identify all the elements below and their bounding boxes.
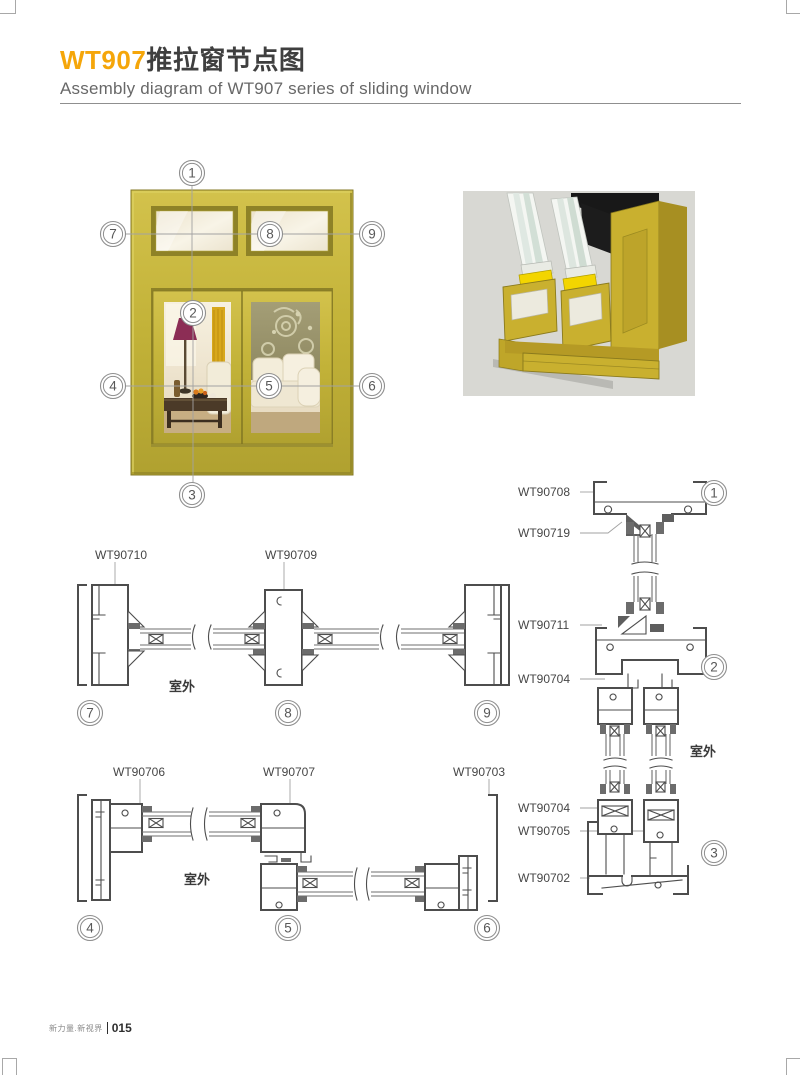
outdoor-label: 室外	[184, 872, 210, 887]
page-subtitle: Assembly diagram of WT907 series of slid…	[60, 79, 750, 99]
svg-text:1: 1	[188, 166, 196, 181]
svg-text:8: 8	[266, 227, 274, 242]
svg-text:8: 8	[284, 706, 292, 721]
page-header: WT907推拉窗节点图 Assembly diagram of WT907 se…	[60, 46, 750, 99]
page-footer: 新力量.新视界 015	[49, 1022, 132, 1034]
section-vertical-detail: WT90708 WT90719 WT90711 WT90704 WT90704 …	[510, 478, 755, 903]
svg-text:2: 2	[710, 660, 718, 675]
left-jamb-profile	[78, 585, 144, 685]
callout-9: 9	[475, 701, 500, 726]
transom-left-pane	[151, 206, 238, 256]
sash-columns	[598, 688, 678, 876]
callout-6: 6	[475, 916, 500, 941]
svg-text:6: 6	[368, 379, 376, 394]
glazing-left	[140, 625, 265, 649]
part-label: WT90719	[518, 526, 570, 540]
callout-9: 9	[360, 222, 385, 247]
callout-4: 4	[101, 374, 126, 399]
svg-text:9: 9	[483, 706, 491, 721]
title-series-code: WT907	[60, 45, 146, 75]
part-label: WT90705	[518, 824, 570, 838]
transom-profile	[596, 628, 706, 688]
callout-2: 2	[702, 655, 727, 680]
part-label: WT90710	[95, 548, 147, 562]
part-label: WT90708	[518, 485, 570, 499]
part-label: WT90702	[518, 871, 570, 885]
header-divider	[60, 103, 741, 104]
crop-mark-top-left	[0, 0, 16, 14]
callout-6: 6	[360, 374, 385, 399]
left-jamb-sash	[78, 795, 152, 901]
crop-mark-top-right	[786, 0, 800, 14]
svg-text:9: 9	[368, 227, 376, 242]
glazing-right	[314, 625, 465, 649]
bottom-track	[151, 444, 333, 447]
callout-1: 1	[702, 481, 727, 506]
render-3d-profile	[463, 191, 695, 396]
title-chinese: 推拉窗节点图	[146, 45, 305, 75]
callout-2: 2	[181, 301, 206, 326]
svg-text:2: 2	[189, 306, 197, 321]
footer-page-number: 015	[107, 1022, 132, 1034]
part-label: WT90703	[453, 765, 505, 779]
crop-mark-bottom-left	[2, 1058, 17, 1075]
part-label: WT90704	[518, 801, 570, 815]
callout-8: 8	[258, 222, 283, 247]
glazing-unit-top	[618, 522, 664, 634]
callout-3: 3	[180, 483, 205, 508]
svg-text:3: 3	[188, 488, 196, 503]
callout-8: 8	[276, 701, 301, 726]
svg-text:5: 5	[265, 379, 273, 394]
section-horizontal-top: WT90710 WT90709	[65, 545, 510, 735]
interior-scene-right	[251, 302, 320, 433]
callout-5: 5	[276, 916, 301, 941]
svg-text:1: 1	[710, 486, 718, 501]
glazing-upper	[142, 806, 261, 842]
svg-text:6: 6	[483, 921, 491, 936]
svg-text:4: 4	[86, 921, 94, 936]
part-label: WT90711	[518, 618, 569, 632]
footer-brand: 新力量.新视界	[49, 1023, 103, 1034]
crop-mark-bottom-right	[786, 1058, 800, 1075]
page-title: WT907推拉窗节点图	[60, 46, 750, 75]
part-label: WT90706	[113, 765, 165, 779]
svg-text:5: 5	[284, 921, 292, 936]
svg-text:4: 4	[109, 379, 117, 394]
catalog-page: WT907推拉窗节点图 Assembly diagram of WT907 se…	[0, 0, 800, 1075]
svg-text:7: 7	[109, 227, 117, 242]
glazing-lower	[297, 866, 425, 902]
part-label: WT90707	[263, 765, 315, 779]
callout-4: 4	[78, 916, 103, 941]
outdoor-label: 室外	[169, 679, 195, 694]
svg-text:3: 3	[710, 846, 718, 861]
section-horizontal-sash: WT90706 WT90707 WT90703	[65, 760, 510, 945]
overview-window-diagram: 1 7 8 9 2 4 5 6 3	[60, 160, 400, 520]
callout-7: 7	[78, 701, 103, 726]
callout-3: 3	[702, 841, 727, 866]
center-interlock	[261, 804, 311, 910]
right-jamb-profile	[449, 585, 509, 685]
callout-5: 5	[257, 374, 282, 399]
svg-text:7: 7	[86, 706, 94, 721]
callout-7: 7	[101, 222, 126, 247]
callout-1: 1	[180, 161, 205, 186]
part-label: WT90704	[518, 672, 570, 686]
part-label: WT90709	[265, 548, 317, 562]
right-jamb-sash	[425, 795, 497, 910]
outdoor-label: 室外	[690, 744, 716, 759]
